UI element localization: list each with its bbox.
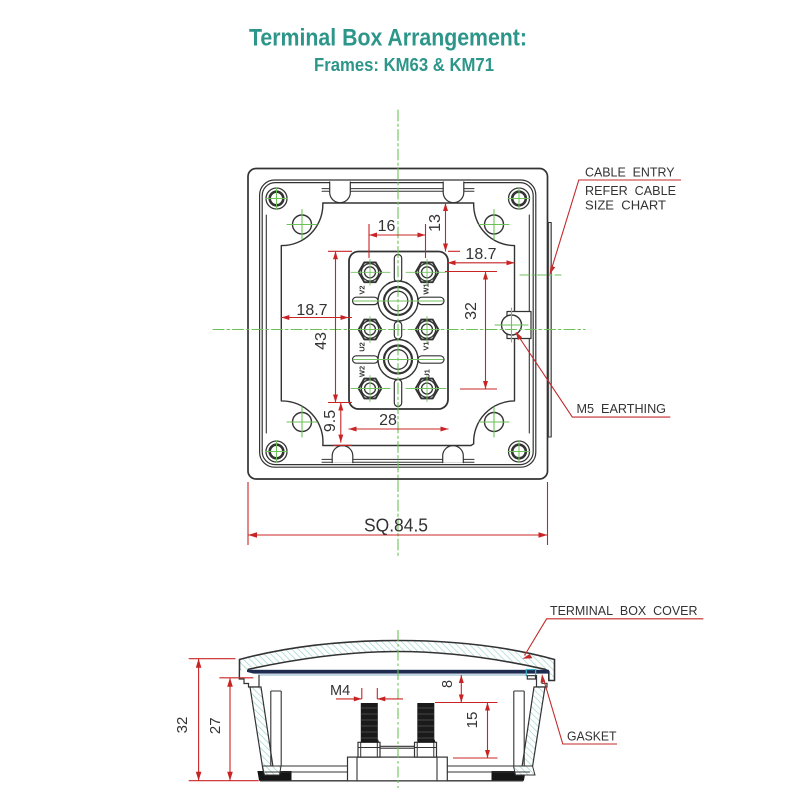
svg-text:28: 28 [379,412,397,429]
svg-text:SQ.84.5: SQ.84.5 [364,516,428,536]
svg-text:15: 15 [464,712,481,729]
svg-text:M4: M4 [330,683,350,699]
svg-text:Frames: KM63 & KM71: Frames: KM63 & KM71 [314,54,494,75]
svg-text:W1: W1 [422,283,431,294]
svg-text:M5 EARTHING: M5 EARTHING [577,401,667,416]
svg-text:V1: V1 [422,341,431,350]
svg-text:GASKET: GASKET [567,729,617,744]
svg-text:18.7: 18.7 [296,302,327,319]
svg-text:13: 13 [427,214,444,232]
svg-text:REFER CABLE: REFER CABLE [585,183,676,198]
svg-text:43: 43 [313,332,330,350]
svg-text:16: 16 [378,218,396,235]
svg-text:32: 32 [463,302,480,320]
svg-text:SIZE CHART: SIZE CHART [585,198,666,213]
svg-text:CABLE ENTRY: CABLE ENTRY [585,165,675,180]
svg-text:V2: V2 [358,285,367,294]
svg-text:TERMINAL BOX COVER: TERMINAL BOX COVER [550,603,698,618]
svg-text:18.7: 18.7 [465,246,496,263]
svg-text:Terminal Box Arrangement:: Terminal Box Arrangement: [249,25,527,52]
svg-text:W2: W2 [358,366,367,377]
svg-text:27: 27 [207,717,224,734]
svg-text:32: 32 [174,717,191,734]
svg-text:U2: U2 [358,342,367,352]
svg-text:9.5: 9.5 [322,410,339,432]
svg-text:8: 8 [440,680,456,688]
